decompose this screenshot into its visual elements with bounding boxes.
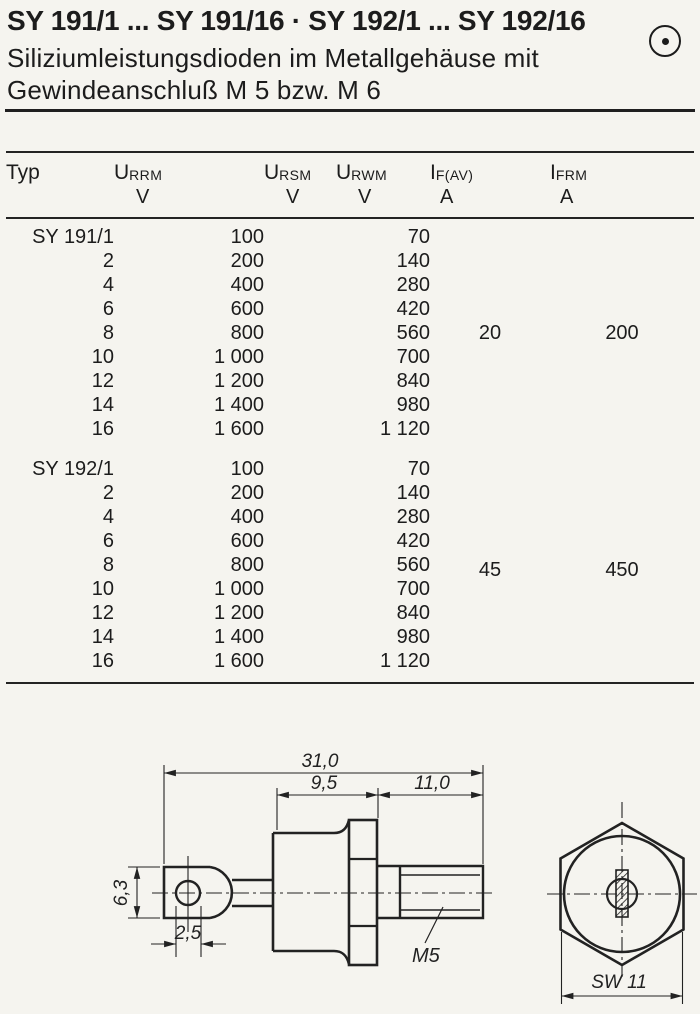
col-header-urrm: URRM V: [114, 152, 264, 218]
cell-urrm: 800: [114, 321, 264, 345]
terminal-lug: [164, 856, 232, 932]
cell-typ: 16: [6, 417, 114, 441]
ratings-group-1: SY 191/110070202002200140440028066004208…: [6, 218, 694, 441]
cell-urwm: 700: [336, 577, 430, 601]
cell-ursm: [264, 273, 336, 297]
cell-ursm: [264, 577, 336, 601]
cell-urrm: 1 000: [114, 345, 264, 369]
ratings-group-2: SY 192/110070454502200140440028066004208…: [6, 441, 694, 683]
cell-ursm: [264, 345, 336, 369]
cell-urrm: 1 400: [114, 625, 264, 649]
cell-urwm: 560: [336, 321, 430, 345]
cell-ifrm: 200: [550, 218, 694, 441]
cell-ursm: [264, 249, 336, 273]
cell-urwm: 980: [336, 393, 430, 417]
svg-text:31,0: 31,0: [302, 751, 339, 772]
cell-ifav: 20: [430, 218, 550, 441]
cell-typ: 8: [6, 553, 114, 577]
cell-ursm: [264, 553, 336, 577]
svg-text:6,3: 6,3: [111, 879, 132, 906]
cell-urwm: 420: [336, 529, 430, 553]
cell-typ: 8: [6, 321, 114, 345]
cell-ursm: [264, 505, 336, 529]
cell-ifav: 45: [430, 441, 550, 683]
screwdriver-slot: [616, 870, 628, 917]
cell-urwm: 140: [336, 481, 430, 505]
cell-typ: SY 192/1: [6, 441, 114, 481]
cell-typ: 6: [6, 297, 114, 321]
cell-urrm: 100: [114, 441, 264, 481]
cell-typ: 4: [6, 505, 114, 529]
dimension-total-length: 31,0: [164, 751, 483, 773]
cell-urrm: 600: [114, 297, 264, 321]
cell-urwm: 700: [336, 345, 430, 369]
cell-typ: 6: [6, 529, 114, 553]
cell-ursm: [264, 297, 336, 321]
ratings-table-header: Typ URRM V URSM V URWM V IF(AV) A IFRM A: [6, 152, 694, 218]
ratings-table: Typ URRM V URSM V URWM V IF(AV) A IFRM A: [6, 151, 694, 684]
cell-urrm: 600: [114, 529, 264, 553]
diode-side-view: 31,0 9,5 11,0: [111, 751, 492, 967]
cell-urrm: 1 200: [114, 601, 264, 625]
svg-text:11,0: 11,0: [414, 773, 450, 794]
diode-front-view: SW 11: [547, 802, 697, 1004]
cell-urrm: 200: [114, 249, 264, 273]
cell-urwm: 280: [336, 273, 430, 297]
cell-ursm: [264, 625, 336, 649]
cell-typ: SY 191/1: [6, 218, 114, 249]
cell-ursm: [264, 441, 336, 481]
cell-urrm: 1 000: [114, 577, 264, 601]
col-header-ifrm: IFRM A: [550, 152, 694, 218]
svg-text:SW 11: SW 11: [591, 972, 647, 993]
cell-urwm: 1 120: [336, 417, 430, 441]
cell-ursm: [264, 601, 336, 625]
col-header-ursm: URSM V: [264, 152, 336, 218]
table-row: SY 191/11007020200: [6, 218, 694, 249]
cell-typ: 2: [6, 249, 114, 273]
cell-urwm: 70: [336, 441, 430, 481]
cell-urrm: 400: [114, 505, 264, 529]
circled-dot-icon-center: [662, 38, 669, 45]
cell-urrm: 1 600: [114, 649, 264, 683]
package-outline-drawing: 31,0 9,5 11,0: [0, 736, 700, 1014]
cell-typ: 4: [6, 273, 114, 297]
cell-urrm: 1 600: [114, 417, 264, 441]
cell-ursm: [264, 417, 336, 441]
page-title: SY 191/1 ... SY 191/16 · SY 192/1 ... SY…: [7, 5, 586, 37]
col-header-typ: Typ: [6, 152, 114, 218]
col-header-ifav: IF(AV) A: [430, 152, 550, 218]
table-row: SY 192/11007045450: [6, 441, 694, 481]
cell-ursm: [264, 321, 336, 345]
cell-urrm: 400: [114, 273, 264, 297]
cell-typ: 10: [6, 345, 114, 369]
threaded-stud: [377, 866, 483, 918]
cell-urrm: 100: [114, 218, 264, 249]
header-divider: [5, 109, 695, 112]
cell-urwm: 1 120: [336, 649, 430, 683]
cell-typ: 10: [6, 577, 114, 601]
cell-typ: 14: [6, 393, 114, 417]
page-subtitle: Siliziumleistungsdioden im Metallgehäuse…: [7, 42, 539, 106]
cell-urwm: 70: [336, 218, 430, 249]
cell-urwm: 980: [336, 625, 430, 649]
cell-ursm: [264, 481, 336, 505]
cell-urrm: 1 400: [114, 393, 264, 417]
cell-typ: 16: [6, 649, 114, 683]
cell-typ: 12: [6, 601, 114, 625]
cell-urwm: 420: [336, 297, 430, 321]
cell-typ: 2: [6, 481, 114, 505]
cell-ursm: [264, 649, 336, 683]
cell-ursm: [264, 529, 336, 553]
cell-urwm: 140: [336, 249, 430, 273]
cell-urwm: 840: [336, 369, 430, 393]
case-body: [273, 820, 349, 964]
cell-ursm: [264, 393, 336, 417]
circled-dot-icon: [649, 25, 681, 57]
cell-urrm: 200: [114, 481, 264, 505]
subtitle-line-1: Siliziumleistungsdioden im Metallgehäuse…: [7, 42, 539, 74]
dimension-body-length: 9,5: [277, 773, 378, 795]
cell-ursm: [264, 218, 336, 249]
cell-ursm: [264, 369, 336, 393]
subtitle-line-2: Gewindeanschluß M 5 bzw. M 6: [7, 74, 539, 106]
col-header-urwm: URWM V: [336, 152, 430, 218]
thread-label: M5: [412, 907, 443, 967]
cell-urwm: 560: [336, 553, 430, 577]
dimension-stud-length: 11,0: [378, 773, 483, 795]
cell-ifrm: 450: [550, 441, 694, 683]
svg-text:9,5: 9,5: [311, 773, 338, 794]
cell-urwm: 280: [336, 505, 430, 529]
cell-typ: 12: [6, 369, 114, 393]
cell-urrm: 800: [114, 553, 264, 577]
svg-text:2,5: 2,5: [174, 923, 202, 944]
cell-urwm: 840: [336, 601, 430, 625]
cell-typ: 14: [6, 625, 114, 649]
svg-text:M5: M5: [412, 945, 441, 967]
cell-urrm: 1 200: [114, 369, 264, 393]
